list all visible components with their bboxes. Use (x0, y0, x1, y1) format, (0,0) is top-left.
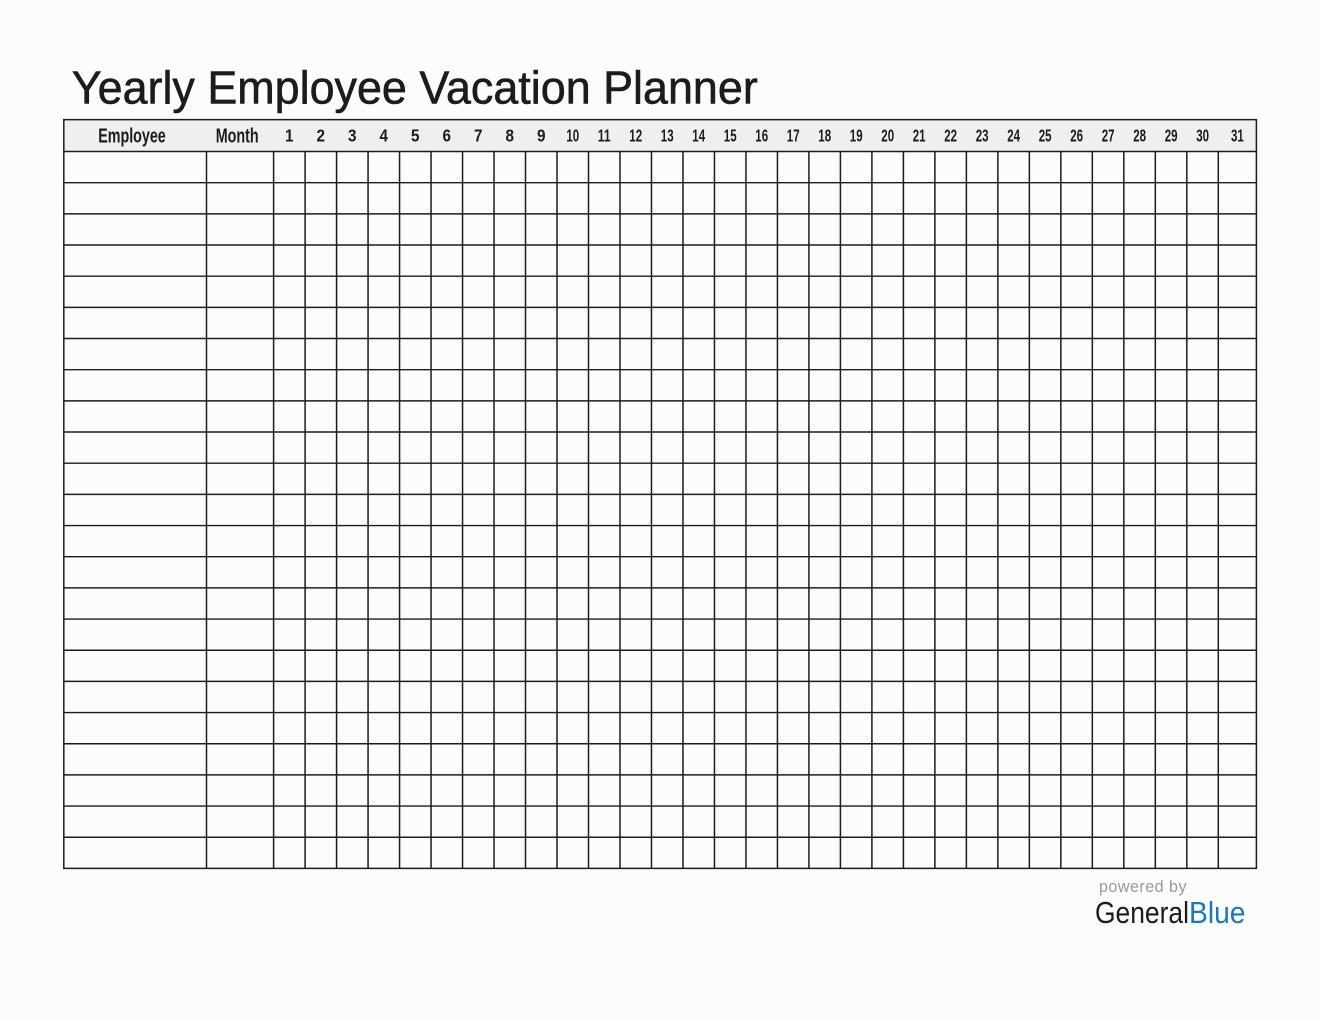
svg-text:22: 22 (944, 125, 957, 145)
svg-text:Month: Month (216, 126, 259, 148)
svg-text:19: 19 (850, 125, 863, 145)
svg-text:25: 25 (1039, 125, 1052, 145)
svg-text:20: 20 (881, 125, 894, 145)
svg-text:13: 13 (661, 125, 674, 145)
svg-text:11: 11 (598, 125, 611, 145)
svg-text:5: 5 (411, 125, 420, 145)
svg-text:18: 18 (818, 125, 831, 145)
svg-text:4: 4 (380, 125, 389, 145)
svg-text:10: 10 (566, 125, 579, 145)
svg-text:31: 31 (1231, 125, 1244, 145)
svg-text:30: 30 (1196, 125, 1209, 145)
svg-text:27: 27 (1102, 125, 1115, 145)
svg-text:23: 23 (976, 125, 989, 145)
svg-text:15: 15 (724, 125, 737, 145)
svg-text:2: 2 (317, 125, 326, 145)
svg-text:Employee: Employee (98, 126, 166, 148)
svg-text:29: 29 (1165, 125, 1178, 145)
svg-text:1: 1 (285, 125, 294, 145)
svg-text:26: 26 (1070, 125, 1083, 145)
svg-text:8: 8 (506, 125, 515, 145)
svg-text:7: 7 (474, 125, 483, 145)
svg-text:17: 17 (787, 125, 800, 145)
svg-text:Yearly Employee Vacation Plann: Yearly Employee Vacation Planner (72, 61, 758, 113)
svg-text:24: 24 (1007, 125, 1020, 145)
svg-text:3: 3 (348, 125, 357, 145)
svg-text:9: 9 (537, 125, 546, 145)
svg-text:powered by: powered by (1099, 877, 1187, 896)
svg-text:28: 28 (1133, 125, 1146, 145)
svg-text:Blue: Blue (1189, 895, 1246, 930)
svg-text:General: General (1095, 895, 1189, 930)
svg-text:14: 14 (692, 125, 705, 145)
svg-text:16: 16 (755, 125, 768, 145)
svg-text:12: 12 (629, 125, 642, 145)
svg-text:6: 6 (443, 125, 452, 145)
svg-text:21: 21 (913, 125, 926, 145)
